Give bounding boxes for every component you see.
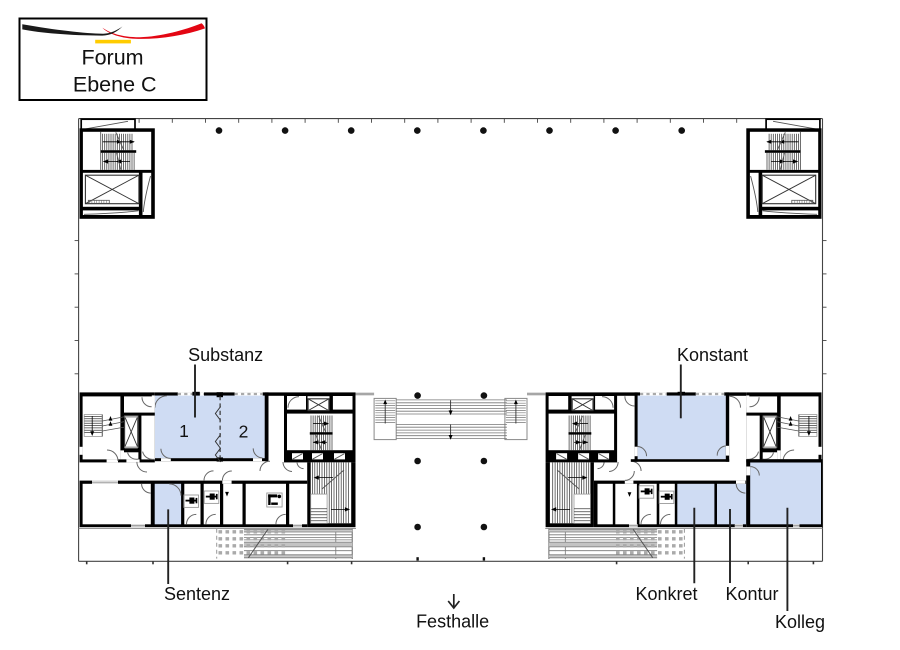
svg-text:1: 1	[179, 421, 189, 441]
svg-text:Forum: Forum	[81, 46, 143, 70]
svg-text:Konkret: Konkret	[635, 584, 697, 604]
svg-text:Substanz: Substanz	[188, 345, 263, 365]
svg-text:Ebene C: Ebene C	[73, 73, 157, 97]
svg-text:Kontur: Kontur	[725, 584, 778, 604]
svg-text:Konstant: Konstant	[677, 345, 748, 365]
svg-text:2: 2	[239, 422, 249, 442]
svg-text:Sentenz: Sentenz	[164, 584, 230, 604]
svg-text:Kolleg: Kolleg	[775, 612, 825, 632]
svg-text:Festhalle: Festhalle	[416, 612, 489, 632]
